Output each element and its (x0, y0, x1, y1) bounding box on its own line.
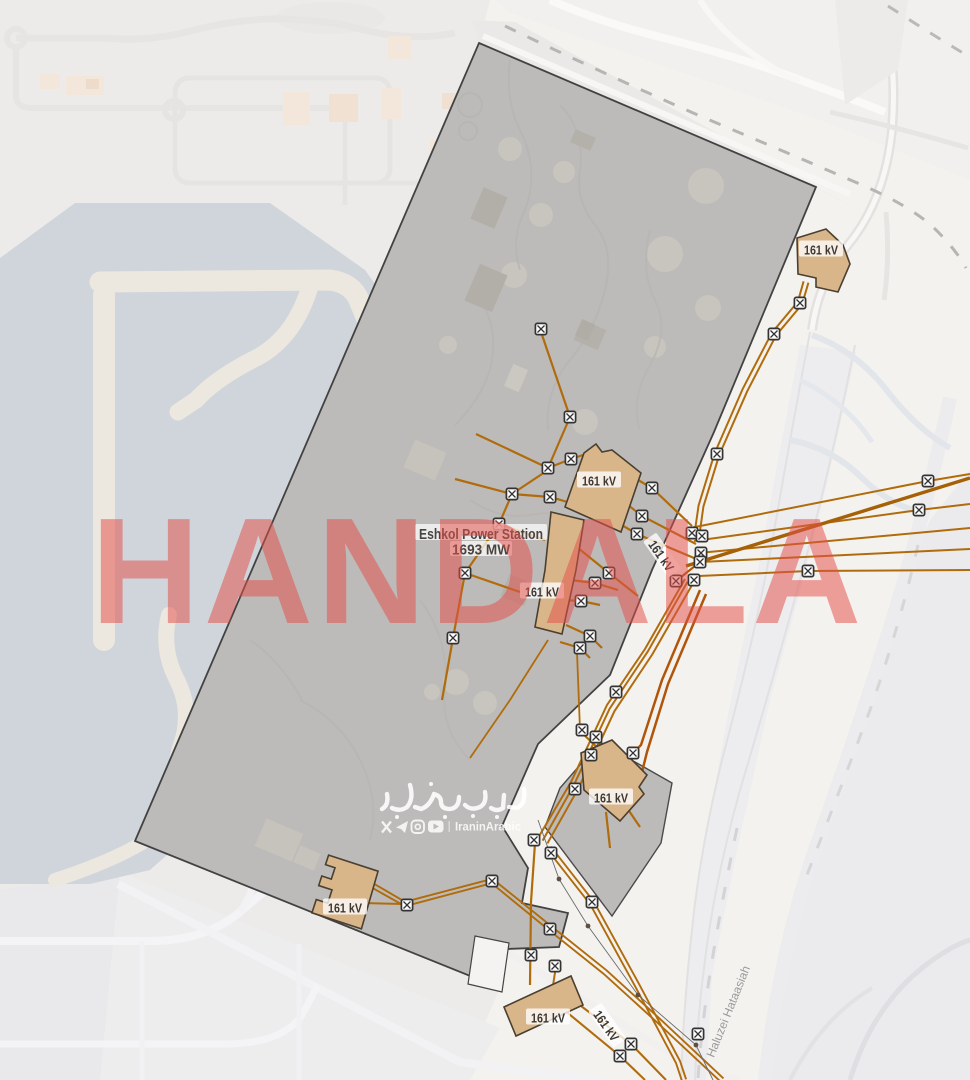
svg-text:161 kV: 161 kV (804, 242, 838, 257)
svg-text:161 kV: 161 kV (328, 900, 362, 915)
svg-text:161 kV: 161 kV (594, 790, 628, 805)
svg-text:IraninArabic: IraninArabic (455, 820, 521, 834)
svg-text:HANDALA: HANDALA (91, 486, 866, 655)
svg-text:161 kV: 161 kV (531, 1010, 565, 1025)
